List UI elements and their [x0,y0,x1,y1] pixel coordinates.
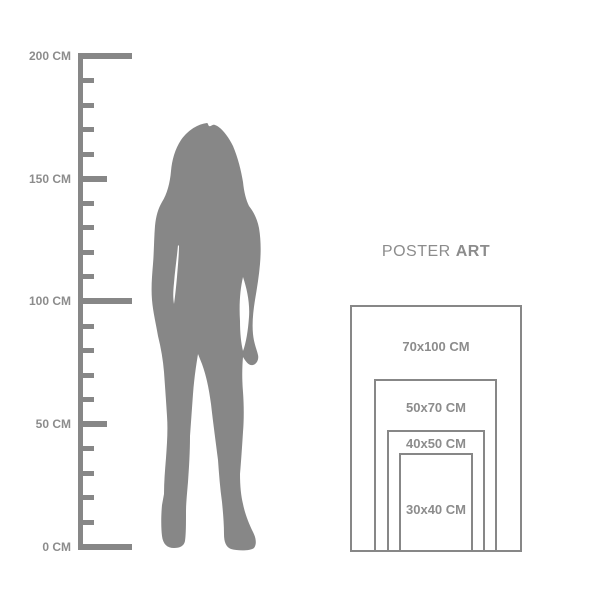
poster-guide-title: POSTERART [350,243,522,261]
poster-size-label-70x100: 70x100 CM [350,339,522,355]
poster-size-label-30x40: 30x40 CM [350,502,522,518]
poster-size-label-50x70: 50x70 CM [350,400,522,416]
poster-size-guide-infographic: 200 CM 150 CM 100 CM 50 CM 0 CM POSTERAR… [0,0,600,600]
poster-guide-title-regular: POSTER [382,243,451,260]
poster-size-label-40x50: 40x50 CM [350,436,522,452]
poster-guide-title-bold: ART [456,243,490,260]
